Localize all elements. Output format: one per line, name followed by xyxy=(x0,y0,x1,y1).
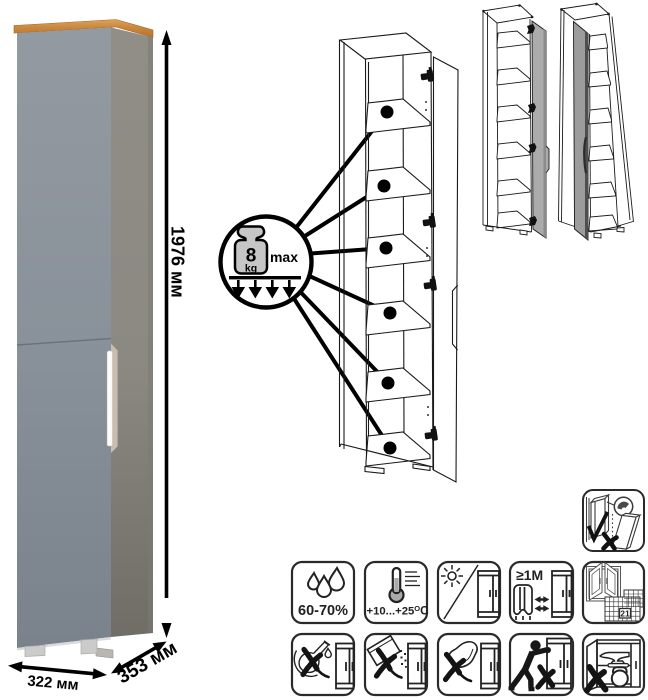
svg-text:60-70%: 60-70% xyxy=(298,603,348,619)
svg-text:+10...+25OC: +10...+25OC xyxy=(367,604,430,618)
svg-text:1976 мм: 1976 мм xyxy=(168,226,188,298)
svg-text:max: max xyxy=(270,249,298,265)
svg-text:21: 21 xyxy=(620,609,630,619)
svg-text:kg: kg xyxy=(245,263,257,275)
svg-text:322 мм: 322 мм xyxy=(27,673,80,694)
svg-text:353 мм: 353 мм xyxy=(114,638,181,689)
svg-text:≥1М: ≥1М xyxy=(516,567,543,583)
